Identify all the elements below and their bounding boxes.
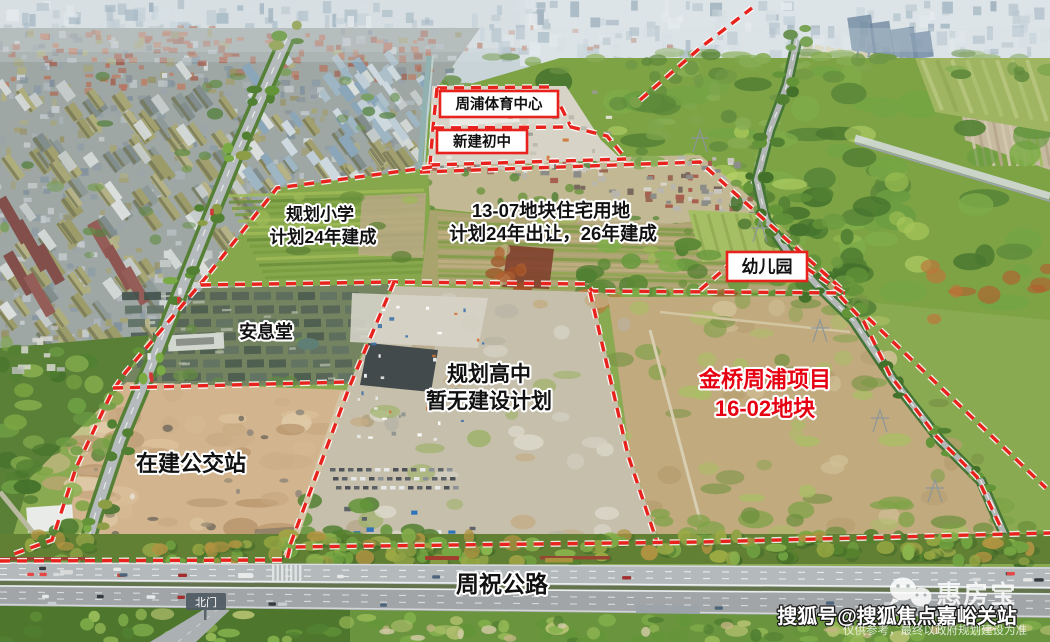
svg-text:北门: 北门: [195, 595, 217, 609]
svg-text:规划小学: 规划小学: [286, 204, 354, 224]
svg-text:13-07地块住宅用地: 13-07地块住宅用地: [472, 200, 631, 221]
svg-text:在建公交站: 在建公交站: [136, 451, 246, 476]
svg-text:安息堂: 安息堂: [239, 321, 293, 342]
svg-text:计划24年出让，26年建成: 计划24年出让，26年建成: [449, 223, 657, 244]
svg-text:仅供参考，最终以政府规划建设为准: 仅供参考，最终以政府规划建设为准: [843, 623, 1027, 637]
svg-text:幼儿园: 幼儿园: [742, 257, 793, 277]
svg-text:规划高中: 规划高中: [447, 362, 531, 386]
svg-text:金桥周浦项目: 金桥周浦项目: [698, 367, 831, 392]
svg-text:计划24年建成: 计划24年建成: [270, 227, 377, 247]
svg-text:新建初中: 新建初中: [453, 133, 511, 151]
svg-text:暂无建设计划: 暂无建设计划: [426, 389, 552, 413]
svg-text:周浦体育中心: 周浦体育中心: [456, 95, 543, 113]
svg-text:惠房宝: 惠房宝: [936, 580, 1017, 609]
svg-text:16-02地块: 16-02地块: [715, 396, 816, 421]
svg-text:周祝公路: 周祝公路: [456, 571, 549, 597]
